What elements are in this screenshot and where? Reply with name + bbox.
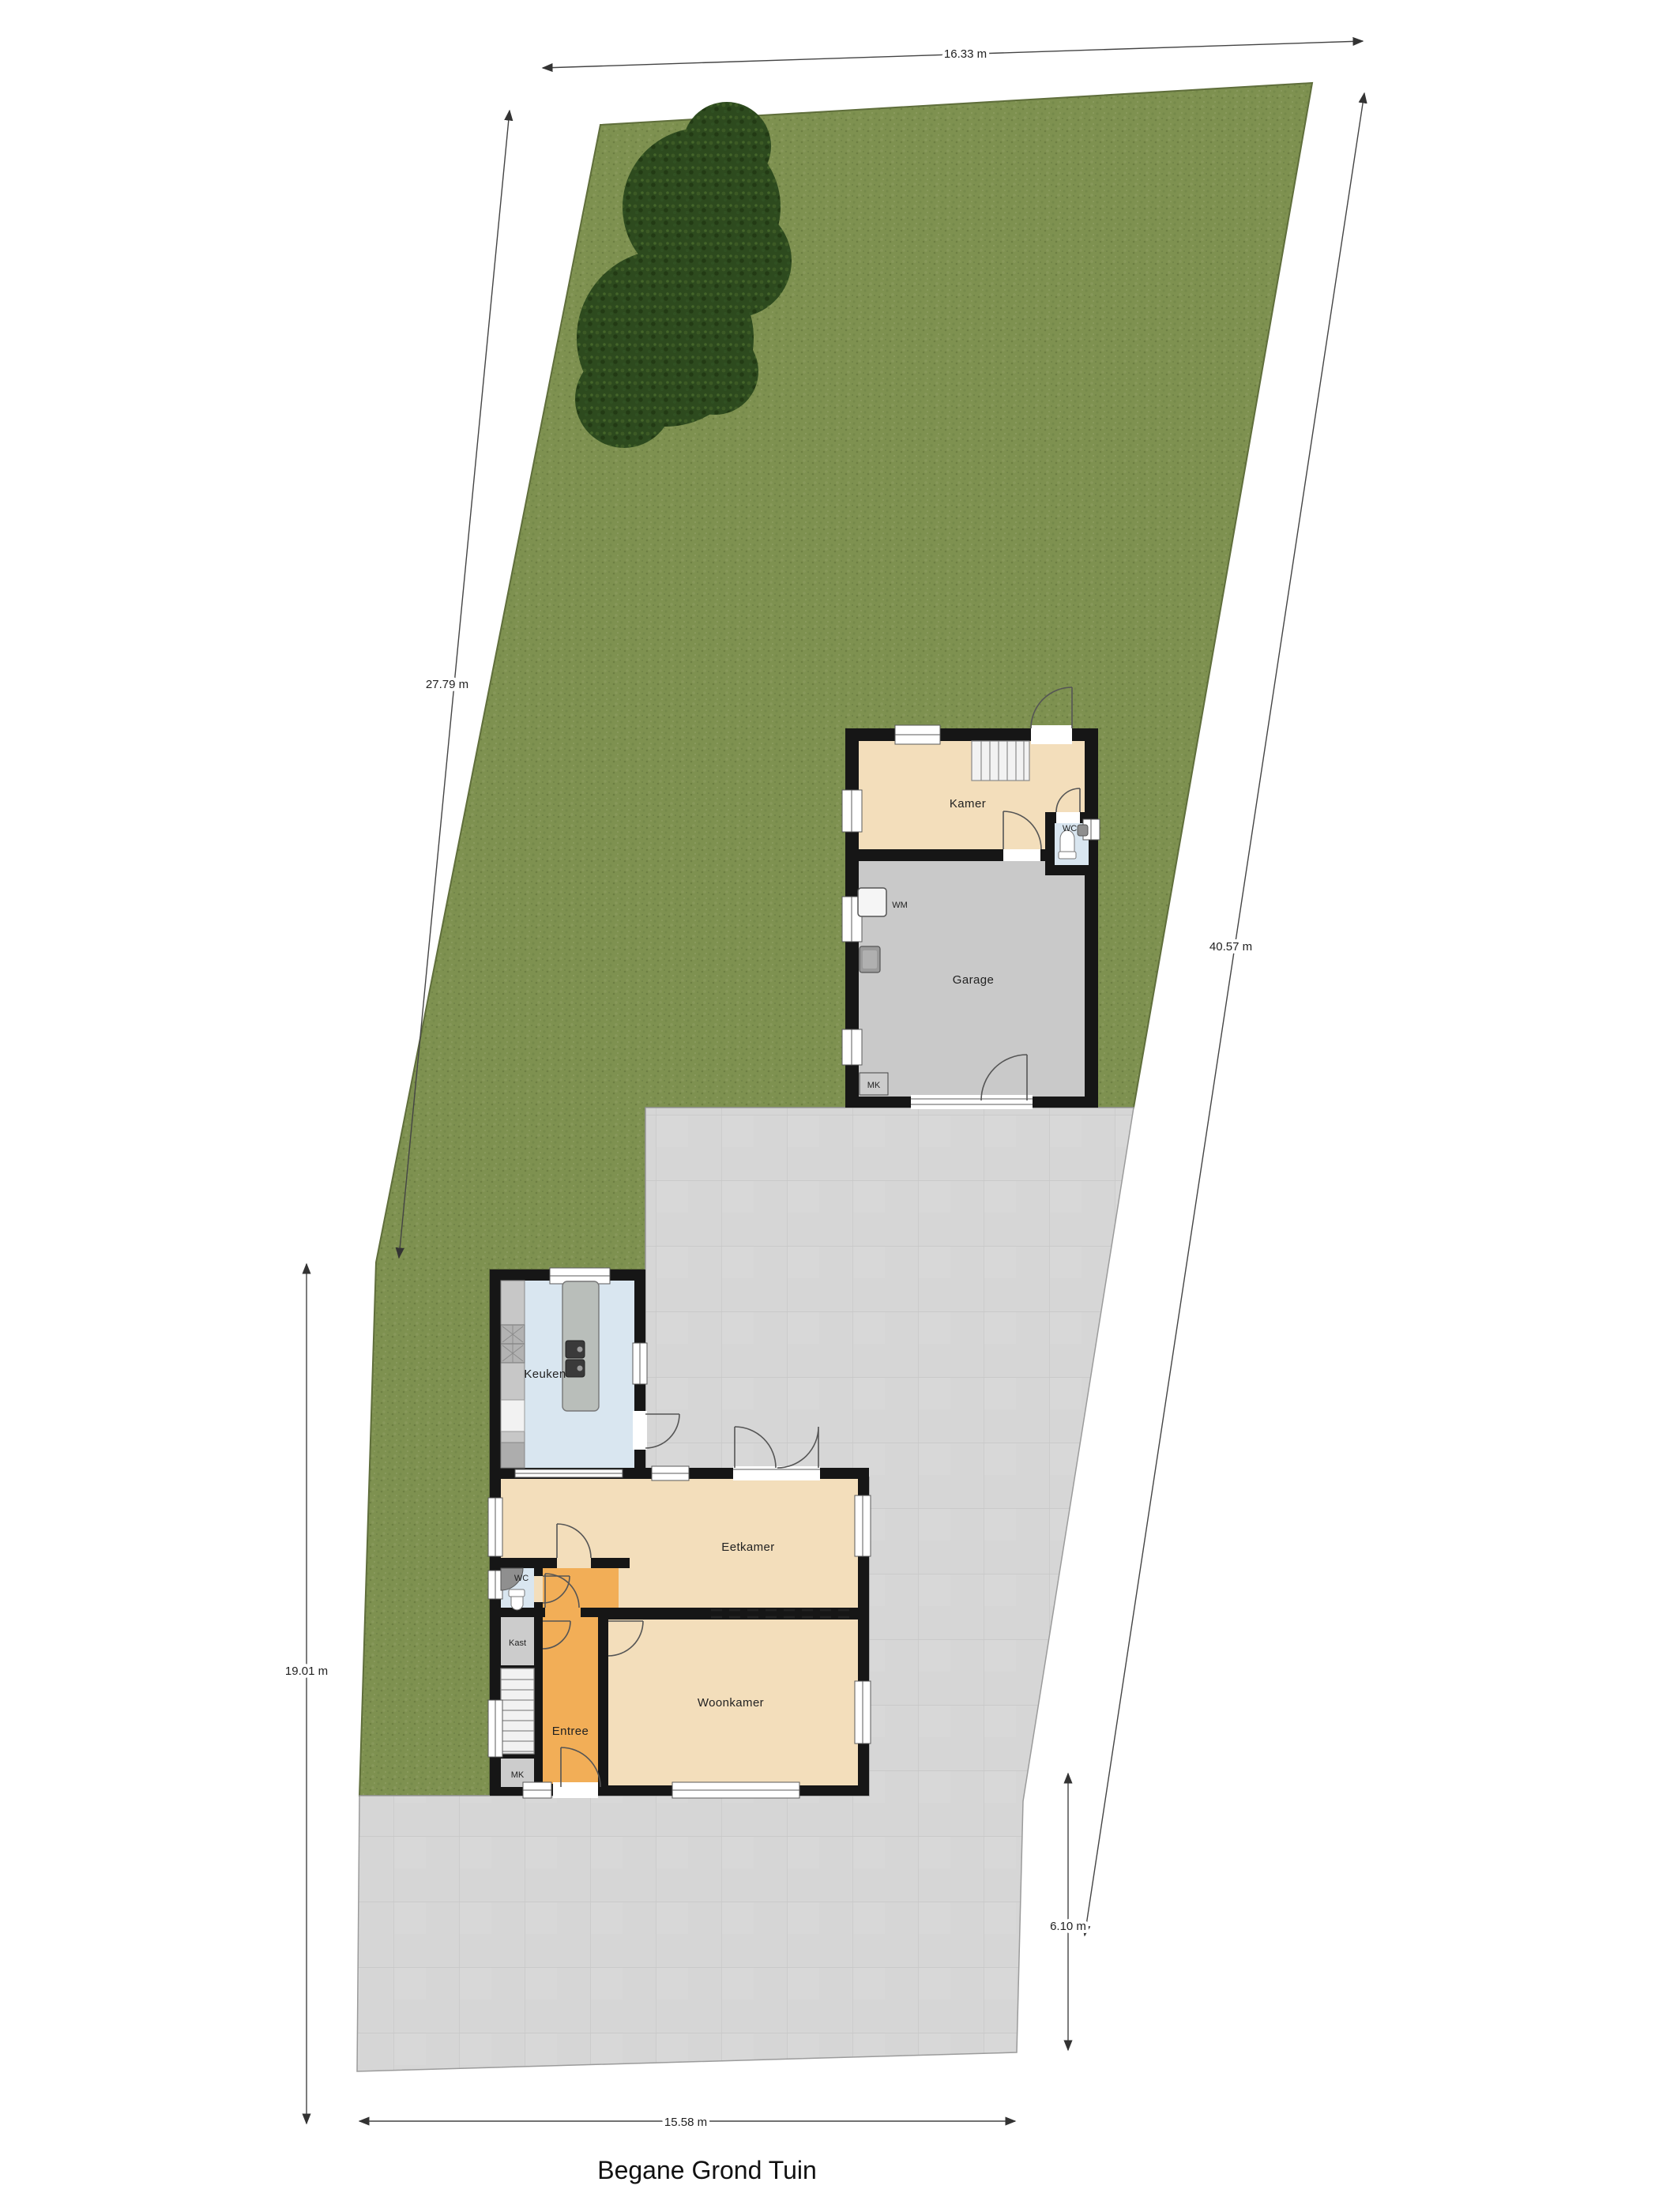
label-woonkamer: Woonkamer xyxy=(698,1696,764,1710)
label-wc-house: WC xyxy=(514,1574,529,1583)
page-title: Begane Grond Tuin xyxy=(597,2156,817,2184)
kitchen-counter xyxy=(501,1281,525,1468)
floorplan-canvas: Kamer WC Garage MK WM Keuken Eetkamer Wo… xyxy=(0,0,1659,2212)
label-garage: Garage xyxy=(953,973,994,987)
dim-top: 16.33 m xyxy=(944,47,987,61)
dim-bottom: 15.58 m xyxy=(664,2116,707,2129)
label-wm: WM xyxy=(892,901,908,910)
dim-right-lower: 6.10 m xyxy=(1050,1920,1086,1933)
dim-right: 40.57 m xyxy=(1209,940,1252,954)
kitchen-island xyxy=(562,1281,599,1411)
label-kamer: Kamer xyxy=(950,797,986,811)
label-entree: Entree xyxy=(552,1725,589,1738)
outbuilding xyxy=(842,687,1100,1109)
label-mk-outbuilding: MK xyxy=(867,1081,881,1090)
stairs-outbuilding xyxy=(972,741,1029,781)
label-eetkamer: Eetkamer xyxy=(721,1540,774,1554)
dim-left-upper: 27.79 m xyxy=(426,678,468,691)
label-wc-outbuilding: WC xyxy=(1063,824,1077,833)
dim-left-lower: 19.01 m xyxy=(285,1665,328,1678)
sink-icon xyxy=(1078,825,1088,836)
label-keuken: Keuken xyxy=(524,1367,566,1381)
washing-machine-icon xyxy=(858,888,886,916)
stairs-house xyxy=(501,1668,534,1754)
toilet-icon xyxy=(1059,830,1076,859)
label-kast: Kast xyxy=(509,1638,526,1648)
label-mk-house: MK xyxy=(511,1770,525,1780)
